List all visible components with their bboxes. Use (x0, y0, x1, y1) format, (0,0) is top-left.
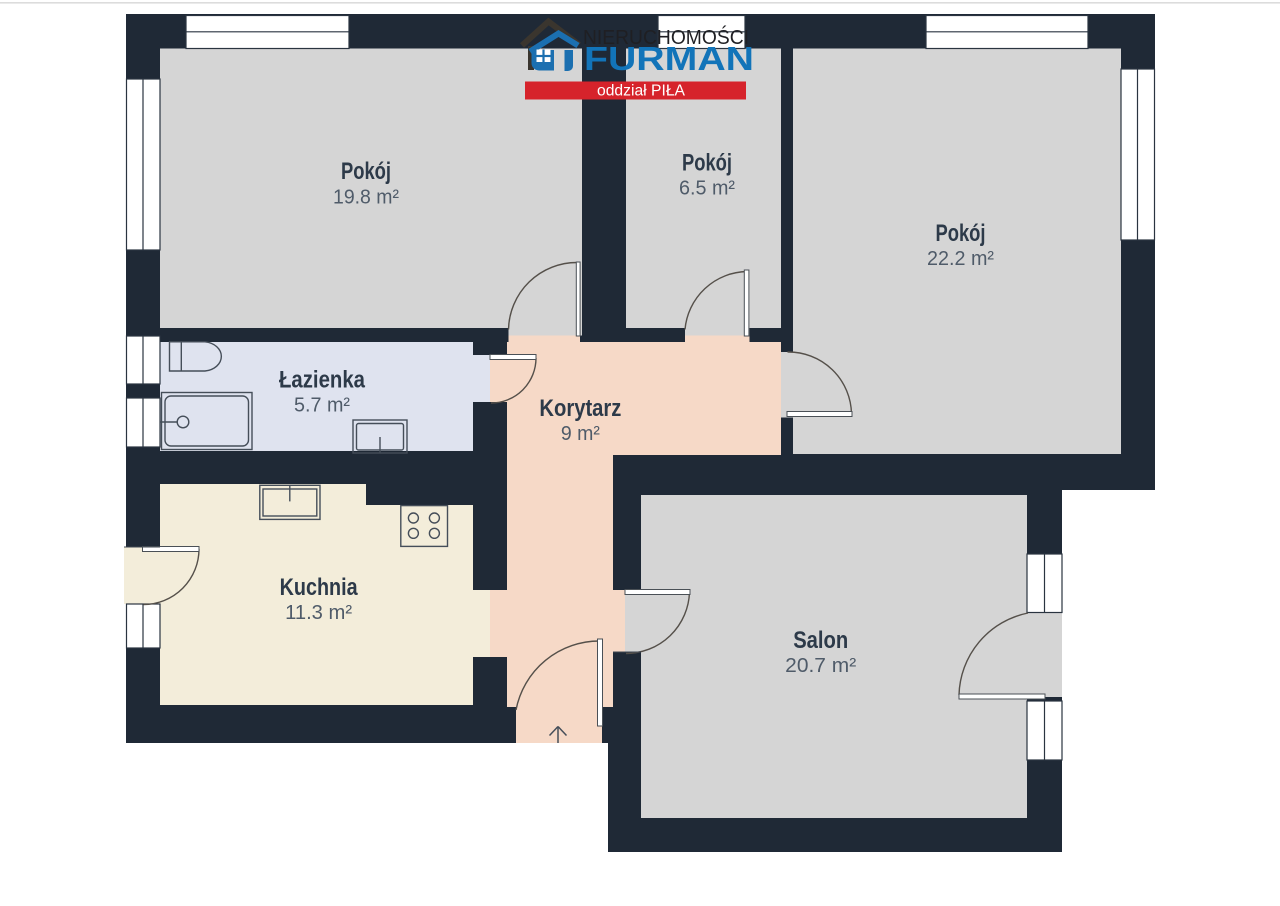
svg-text:11.3 m²: 11.3 m² (285, 602, 352, 624)
svg-text:Pokój: Pokój (341, 158, 391, 185)
svg-text:oddział PIŁA: oddział PIŁA (597, 83, 685, 100)
svg-text:Pokój: Pokój (936, 220, 986, 247)
svg-text:19.8 m²: 19.8 m² (333, 187, 399, 209)
svg-text:9 m²: 9 m² (561, 423, 600, 445)
svg-text:Salon: Salon (793, 627, 848, 654)
svg-text:5.7 m²: 5.7 m² (294, 395, 350, 417)
svg-text:Łazienka: Łazienka (279, 367, 366, 394)
svg-text:Kuchnia: Kuchnia (280, 574, 359, 601)
svg-text:FURMAN: FURMAN (584, 40, 754, 77)
svg-text:20.7 m²: 20.7 m² (785, 655, 856, 677)
svg-text:Pokój: Pokój (682, 150, 732, 177)
svg-text:Korytarz: Korytarz (539, 395, 621, 422)
svg-text:22.2 m²: 22.2 m² (927, 248, 994, 270)
svg-text:6.5 m²: 6.5 m² (679, 178, 735, 200)
